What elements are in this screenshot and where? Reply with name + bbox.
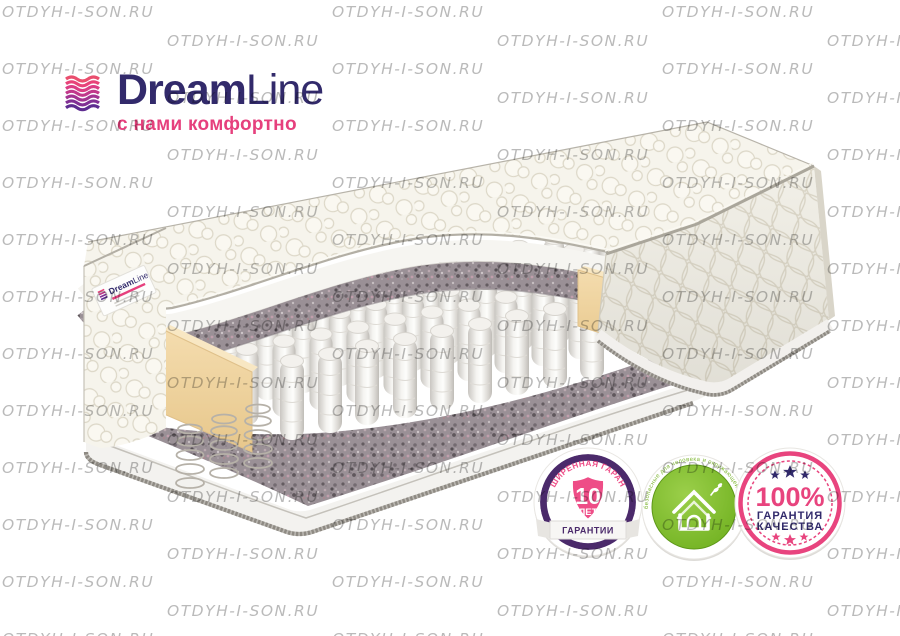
svg-text:КАЧЕСТВА: КАЧЕСТВА xyxy=(757,521,824,533)
dreamline-waves-icon xyxy=(64,75,104,112)
mattress-left-end: DreamLine xyxy=(84,228,166,448)
quality-badge: 100% ГАРАНТИЯ КАЧЕСТВА xyxy=(735,448,845,560)
svg-text:100%: 100% xyxy=(755,482,824,512)
svg-text:ГАРАНТИИ: ГАРАНТИИ xyxy=(562,526,614,536)
product-image-stage: DreamLine xyxy=(0,0,900,636)
svg-text:10: 10 xyxy=(575,483,601,509)
eco-badge: безопасные для человека и окружающей сре… xyxy=(642,455,746,561)
brand-logo: DreamLine с нами комфортно xyxy=(64,70,323,136)
brand-name: DreamLine xyxy=(117,70,323,110)
svg-text:ЛЕТ: ЛЕТ xyxy=(579,507,598,518)
brand-tagline: с нами комфортно xyxy=(117,114,323,136)
warranty-badge: РАСШИРЕННАЯ ГАРАНТИЯ 10 ЛЕТ ГАРАНТИИ xyxy=(528,438,642,558)
certification-badges: РАСШИРЕННАЯ ГАРАНТИЯ 10 ЛЕТ ГАРАНТИИ без… xyxy=(528,438,868,578)
